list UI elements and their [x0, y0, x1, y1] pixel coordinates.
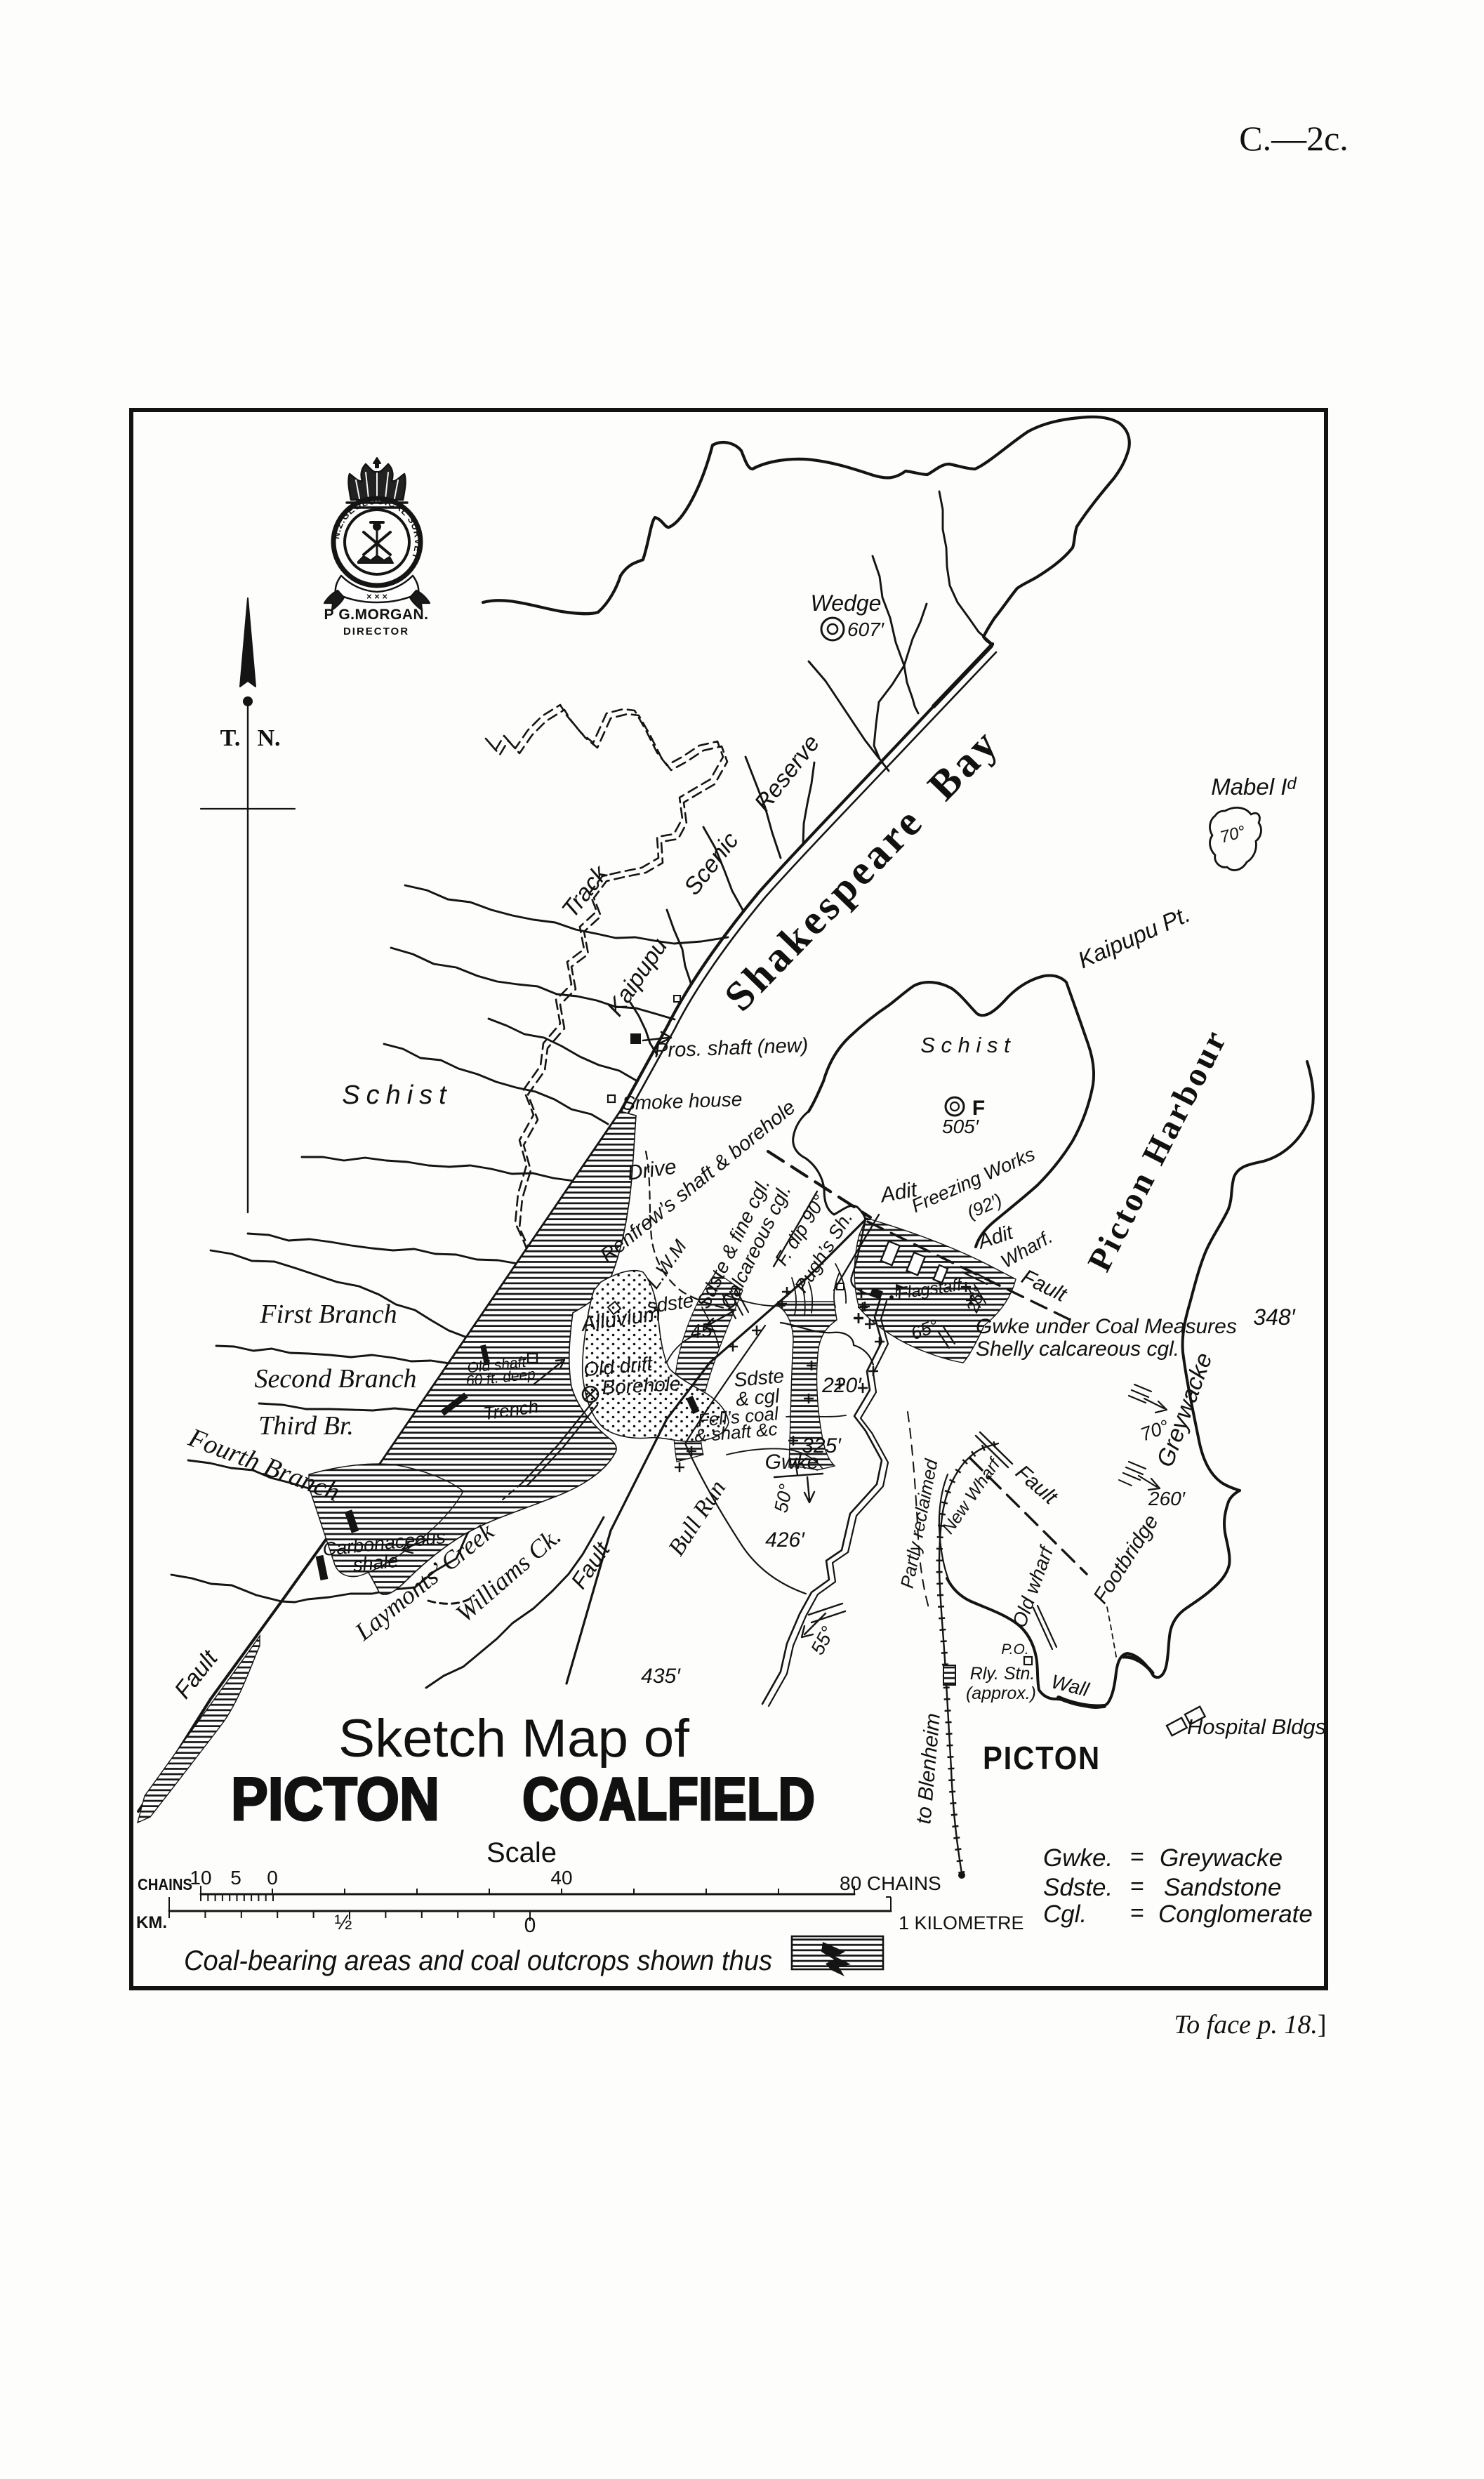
svg-text:80 CHAINS: 80 CHAINS [840, 1872, 941, 1894]
svg-text:N.: N. [257, 725, 280, 751]
svg-text:0: 0 [267, 1867, 278, 1889]
svg-text:260′: 260′ [1148, 1488, 1186, 1509]
svg-text:Hospital Bldgs: Hospital Bldgs [1187, 1714, 1326, 1739]
svg-text:=: = [1130, 1844, 1144, 1870]
svg-text:=: = [1130, 1900, 1144, 1926]
svg-text:P.O.: P.O. [1001, 1641, 1028, 1658]
svg-text:× × ×: × × × [366, 591, 387, 602]
svg-text:Coal-bearing areas and coal ou: Coal-bearing areas and coal outcrops sho… [184, 1945, 772, 1976]
svg-text:Borehole: Borehole [602, 1373, 682, 1399]
svg-text:P G.MORGAN.: P G.MORGAN. [324, 607, 428, 623]
svg-text:426′: 426′ [765, 1528, 805, 1552]
svg-text:220′: 220′ [821, 1374, 862, 1397]
svg-text:Sketch Map of: Sketch Map of [338, 1709, 690, 1769]
svg-text:Rly. Stn.: Rly. Stn. [970, 1664, 1035, 1684]
svg-text:Gwke.: Gwke. [1043, 1844, 1113, 1872]
svg-text:Wedge: Wedge [811, 590, 882, 616]
svg-text:Greywacke: Greywacke [1160, 1844, 1283, 1872]
svg-text:45: 45 [689, 1318, 714, 1343]
svg-text:C.—2c.: C.—2c. [1239, 119, 1349, 158]
svg-text:607′: 607′ [847, 619, 885, 640]
svg-text:½: ½ [334, 1911, 352, 1934]
svg-text:40: 40 [550, 1867, 572, 1889]
svg-text:Cgl.: Cgl. [1043, 1900, 1087, 1928]
svg-text:Gwke under Coal Measures: Gwke under Coal Measures [976, 1315, 1237, 1338]
svg-text:T.: T. [220, 725, 241, 751]
svg-text:First Branch: First Branch [259, 1300, 397, 1329]
svg-text:Schist: Schist [342, 1080, 452, 1110]
svg-text:Third Br.: Third Br. [258, 1411, 354, 1441]
svg-text:5: 5 [230, 1867, 241, 1889]
svg-text:COALFIELD: COALFIELD [522, 1766, 815, 1833]
svg-text:(approx.): (approx.) [966, 1684, 1036, 1703]
svg-text:To face p. 18.]: To face p. 18.] [1174, 2010, 1326, 2040]
svg-text:Mabel Id: Mabel Id [1211, 774, 1297, 800]
svg-text:PICTON: PICTON [983, 1740, 1101, 1776]
svg-text:CHAINS: CHAINS [138, 1875, 192, 1893]
svg-text:0: 0 [524, 1914, 536, 1937]
svg-text:Smoke house: Smoke house [622, 1088, 743, 1114]
svg-text:Shelly calcareous cgl.: Shelly calcareous cgl. [976, 1337, 1179, 1361]
svg-text:10: 10 [190, 1867, 211, 1889]
svg-text:Conglomerate: Conglomerate [1158, 1900, 1313, 1928]
svg-text:PICTON: PICTON [231, 1766, 439, 1833]
svg-text:435′: 435′ [641, 1665, 681, 1688]
svg-text:Sandstone: Sandstone [1164, 1874, 1281, 1901]
svg-text:Sdste.: Sdste. [1043, 1874, 1113, 1901]
svg-text:Scale: Scale [486, 1837, 557, 1868]
svg-text:348′: 348′ [1253, 1304, 1295, 1330]
svg-text:Second Branch: Second Branch [254, 1364, 416, 1394]
svg-text:Gwke: Gwke [765, 1450, 819, 1474]
svg-text:S c h i s t: S c h i s t [920, 1033, 1011, 1057]
svg-text:KM.: KM. [136, 1913, 167, 1932]
svg-text:DIRECTOR: DIRECTOR [343, 626, 409, 637]
svg-text:1 KILOMETRE: 1 KILOMETRE [899, 1912, 1024, 1933]
svg-text:=: = [1130, 1873, 1144, 1900]
svg-text:505′: 505′ [942, 1116, 980, 1137]
